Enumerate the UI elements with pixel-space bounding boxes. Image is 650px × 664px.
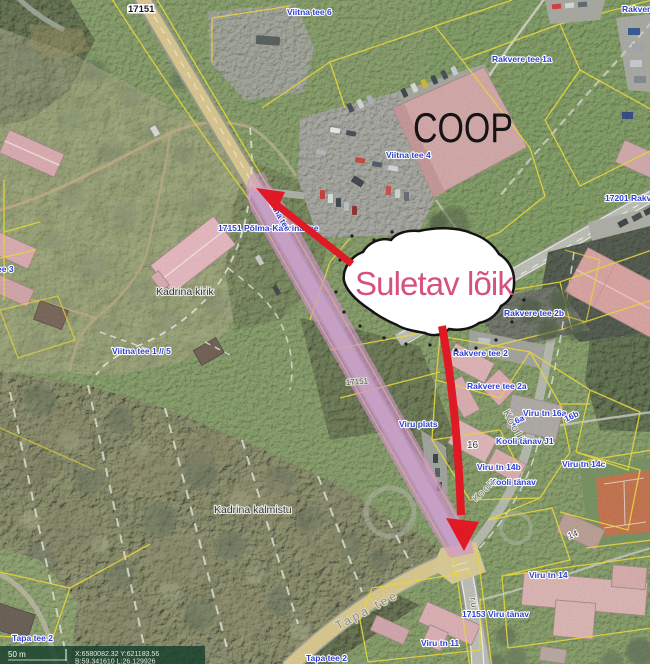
svg-text:Kadrina kirik: Kadrina kirik [156,286,215,298]
svg-text:Viru tn 14b: Viru tn 14b [477,462,521,472]
svg-text:B:59.341610 L:26.129926: B:59.341610 L:26.129926 [75,659,156,664]
svg-text:17201 Rakv: 17201 Rakv [605,193,650,203]
svg-text:17153 Viru tänav: 17153 Viru tänav [462,609,529,619]
svg-text:Viru plats: Viru plats [399,419,438,429]
svg-text:Viru tn 14c: Viru tn 14c [562,459,606,469]
svg-text:COOP: COOP [413,104,513,151]
svg-text:17151: 17151 [128,4,155,15]
svg-text:Rakvere tee 2: Rakvere tee 2 [453,348,508,358]
svg-text:50 m: 50 m [8,650,26,659]
svg-text:Tapa tee 2: Tapa tee 2 [306,653,347,663]
svg-text:Viru tn 11: Viru tn 11 [421,638,459,648]
svg-text:Viitna tee 1 // 5: Viitna tee 1 // 5 [112,346,171,356]
svg-text:Viitna tee 4: Viitna tee 4 [386,150,431,160]
svg-text:16: 16 [467,440,479,451]
svg-text:Kadrina kalmistu: Kadrina kalmistu [214,504,292,516]
svg-text:ee 3: ee 3 [0,264,14,274]
svg-text:17151: 17151 [346,376,369,387]
svg-text:Rakvere: Rakvere [622,4,650,14]
svg-text:Viru tn 16a: Viru tn 16a [523,408,567,418]
svg-text:Suletav lõik: Suletav lõik [355,265,514,302]
svg-text:Rakvere tee 2b: Rakvere tee 2b [504,308,564,318]
svg-text:Kooli tänav: Kooli tänav [490,477,536,487]
svg-text:Tapa tee 2: Tapa tee 2 [12,633,53,643]
svg-text:Rakvere tee 1a: Rakvere tee 1a [492,54,552,64]
svg-text:Rakvere tee 2a: Rakvere tee 2a [467,381,527,391]
svg-text:Viru tn 14: Viru tn 14 [529,570,568,580]
svg-text:X:6580082.32 Y:621183.56: X:6580082.32 Y:621183.56 [75,651,159,658]
svg-text:ru: ru [468,597,480,611]
svg-text:Viitna tee 6: Viitna tee 6 [287,7,332,17]
